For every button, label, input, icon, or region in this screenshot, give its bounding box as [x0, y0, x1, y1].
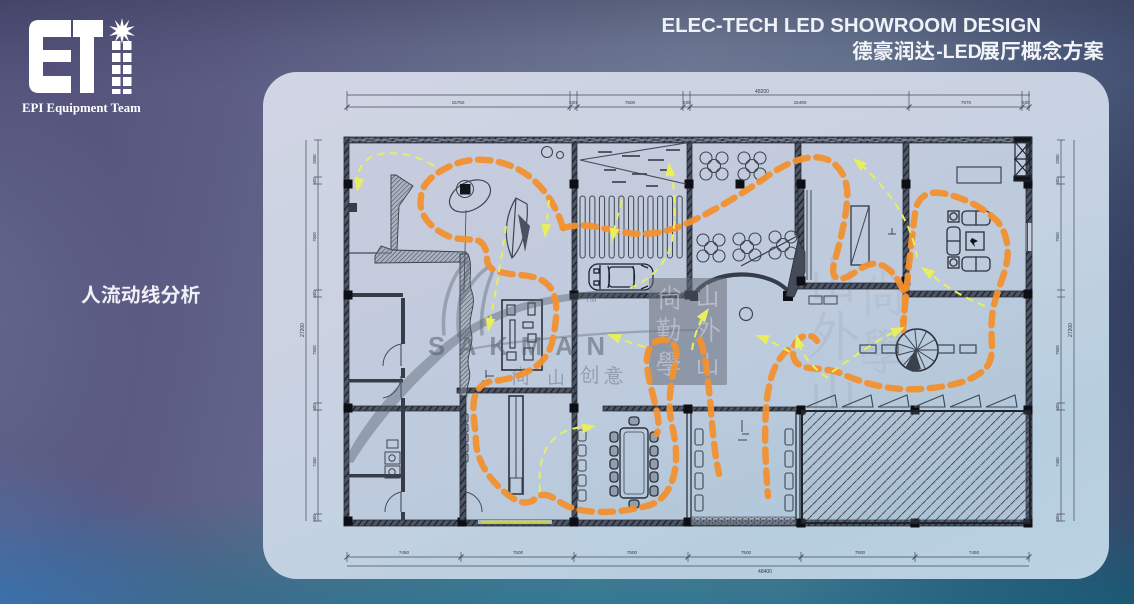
svg-text:500: 500	[683, 100, 691, 105]
svg-text:TM: TM	[585, 295, 597, 304]
svg-text:7450: 7450	[969, 550, 980, 555]
svg-text:2850: 2850	[1055, 154, 1060, 164]
svg-text:15490: 15490	[794, 100, 807, 105]
svg-text:500: 500	[1022, 100, 1030, 105]
svg-text:48200: 48200	[755, 89, 769, 95]
svg-text:7970: 7970	[961, 100, 972, 105]
svg-text:15750: 15750	[452, 100, 465, 105]
svg-text:500: 500	[1055, 177, 1060, 185]
svg-text:7500: 7500	[312, 345, 317, 355]
svg-text:27200: 27200	[1068, 323, 1074, 337]
svg-text:27200: 27200	[300, 323, 306, 337]
svg-text:7500: 7500	[513, 550, 524, 555]
svg-text:7500: 7500	[312, 232, 317, 242]
svg-text:SAKMAN: SAKMAN	[428, 333, 618, 361]
svg-text:7500: 7500	[855, 550, 866, 555]
svg-text:500: 500	[1055, 403, 1060, 411]
svg-text:48400: 48400	[758, 569, 772, 575]
svg-text:500: 500	[312, 514, 317, 522]
svg-text:7450: 7450	[1055, 457, 1060, 467]
svg-text:2850: 2850	[312, 154, 317, 164]
svg-text:500: 500	[1055, 514, 1060, 522]
svg-text:7450: 7450	[399, 550, 410, 555]
svg-text:7500: 7500	[627, 550, 638, 555]
svg-text:500: 500	[312, 290, 317, 298]
svg-text:7500: 7500	[625, 100, 636, 105]
svg-text:500: 500	[312, 403, 317, 411]
svg-text:7450: 7450	[312, 457, 317, 467]
svg-text:500: 500	[312, 177, 317, 185]
svg-text:7500: 7500	[1055, 345, 1060, 355]
svg-text:7500: 7500	[741, 550, 752, 555]
svg-text:7500: 7500	[1055, 232, 1060, 242]
svg-text:500: 500	[569, 100, 577, 105]
